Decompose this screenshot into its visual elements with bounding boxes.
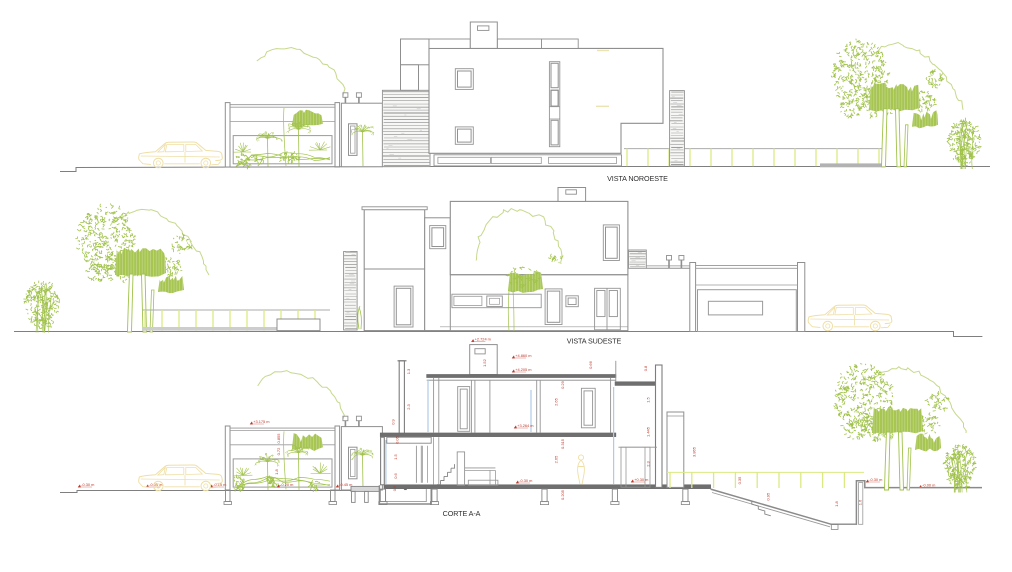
svg-text:-0.20 m: -0.20 m (280, 482, 293, 487)
svg-text:+0.30 m: +0.30 m (634, 477, 648, 482)
svg-text:2.65: 2.65 (554, 397, 559, 406)
svg-text:-0.00 m: -0.00 m (922, 483, 935, 488)
svg-text:0.95: 0.95 (765, 492, 770, 501)
svg-text:1.52: 1.52 (482, 358, 487, 367)
svg-text:-0.30 m: -0.30 m (869, 477, 882, 482)
svg-text:+3.175 m: +3.175 m (253, 419, 269, 424)
svg-text:0.6: 0.6 (393, 472, 398, 478)
svg-text:0.29: 0.29 (560, 380, 565, 389)
svg-text:1.8: 1.8 (274, 468, 279, 474)
svg-text:VISTA NOROESTE: VISTA NOROESTE (607, 174, 668, 183)
svg-text:+3.264 m: +3.264 m (517, 423, 533, 428)
svg-text:+4.205 m: +4.205 m (515, 367, 531, 372)
svg-text:0.72: 0.72 (276, 447, 281, 456)
svg-text:0.9: 0.9 (391, 418, 396, 424)
svg-text:1.5: 1.5 (646, 396, 651, 402)
svg-text:VISTA SUDESTE: VISTA SUDESTE (567, 337, 622, 346)
svg-text:0.35: 0.35 (737, 476, 742, 485)
svg-text:3.865: 3.865 (692, 446, 697, 457)
svg-text:+4.860 m: +4.860 m (515, 353, 531, 358)
svg-text:2.3: 2.3 (406, 403, 411, 409)
svg-text:1.3: 1.3 (406, 368, 411, 374)
svg-text:0.315: 0.315 (560, 438, 565, 449)
svg-text:0.855: 0.855 (276, 433, 281, 444)
svg-text:-0.30 m: -0.30 m (81, 482, 94, 487)
svg-text:0.205: 0.205 (560, 489, 565, 500)
svg-text:1.8: 1.8 (834, 500, 839, 506)
svg-text:0.05: 0.05 (395, 435, 400, 444)
svg-text:0.8: 0.8 (643, 365, 648, 371)
svg-text:1.445: 1.445 (646, 426, 651, 437)
svg-text:1.5: 1.5 (393, 453, 398, 459)
svg-text:-0.30 m: -0.30 m (519, 478, 532, 483)
svg-text:2.65: 2.65 (554, 455, 559, 464)
svg-text:-0.45 m: -0.45 m (339, 482, 352, 487)
svg-text:0.6: 0.6 (392, 485, 397, 491)
svg-text:+2.724 m: +2.724 m (475, 337, 491, 342)
svg-text:CORTE A-A: CORTE A-A (443, 509, 481, 518)
svg-text:0.66: 0.66 (588, 360, 593, 369)
svg-text:2.3: 2.3 (646, 460, 651, 466)
